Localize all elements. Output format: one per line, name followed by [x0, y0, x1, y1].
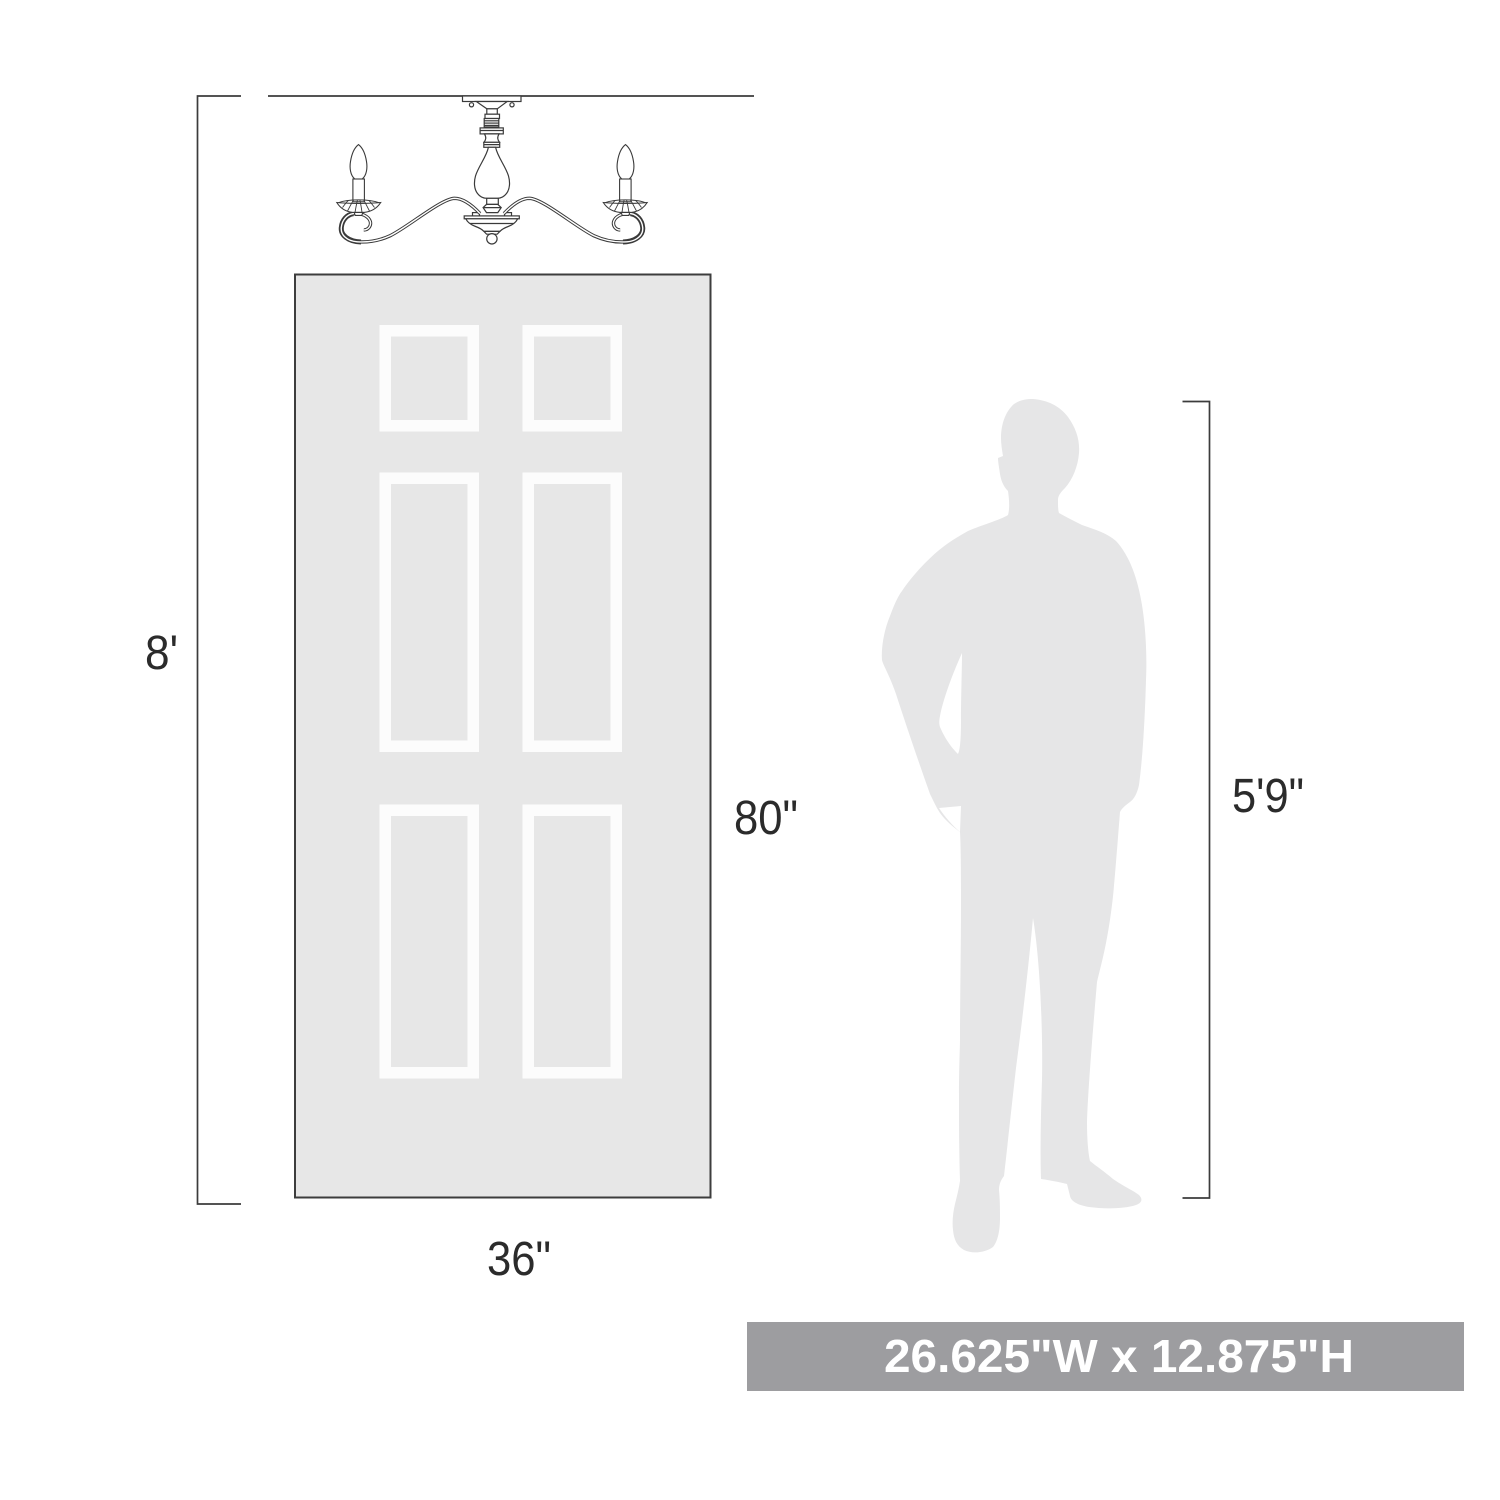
- svg-text:36": 36": [487, 1233, 551, 1286]
- svg-text:8': 8': [145, 627, 178, 680]
- svg-text:26.625"W x 12.875"H: 26.625"W x 12.875"H: [884, 1330, 1354, 1382]
- svg-text:80": 80": [734, 792, 798, 845]
- svg-text:5'9": 5'9": [1232, 770, 1304, 823]
